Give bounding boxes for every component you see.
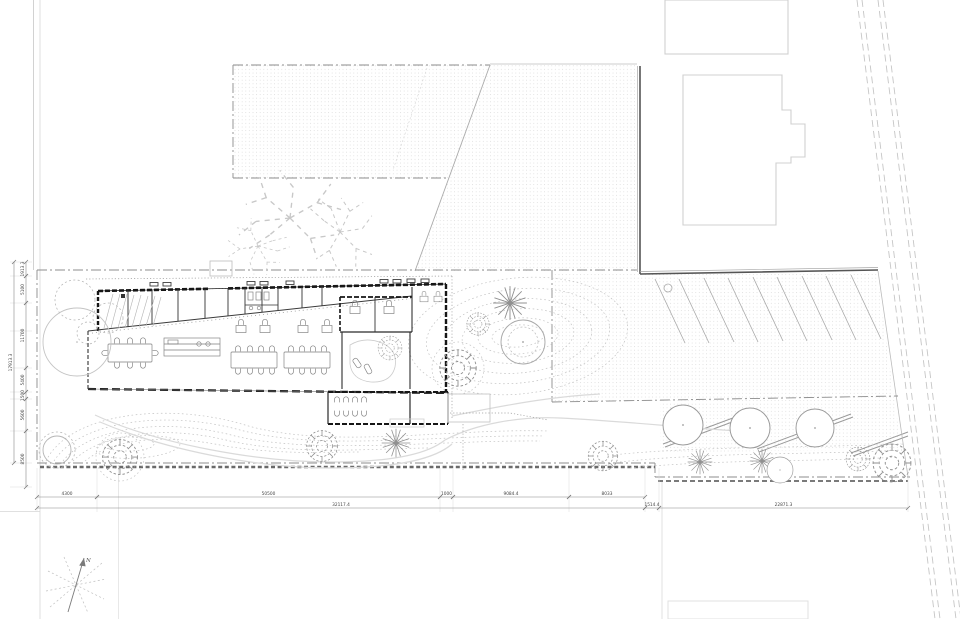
building (86, 276, 548, 470)
north-arrow: N (46, 557, 106, 613)
upper-field-hatched (233, 65, 490, 178)
entry-gate (210, 261, 232, 276)
site-plan-drawing: 43005050010009084.4803332117.41514.42287… (0, 0, 960, 619)
dimension-label: 9084.4 (503, 491, 518, 497)
dimension-label: 32117.4 (332, 502, 350, 508)
dimension-label: 4300 (62, 491, 73, 497)
interior-partitions (128, 286, 322, 327)
east-wing-rooms (340, 287, 412, 332)
south-annex (328, 392, 490, 427)
dimension-label: 1514.4 (644, 502, 659, 508)
left-road (0, 0, 119, 619)
long-table (108, 344, 152, 362)
long-table (284, 352, 330, 368)
dimension-label: 5600 (20, 409, 26, 420)
fixture-mark (121, 294, 125, 298)
courtyard (342, 332, 410, 389)
parking-row-trees (663, 405, 834, 483)
annex-chairs (335, 397, 367, 416)
dimension-label: 22871.3 (775, 502, 793, 508)
toilet-fixtures (248, 292, 269, 310)
kitchen-counter (164, 338, 220, 356)
lounger (363, 363, 372, 374)
dimension-label: 17913.3 (8, 353, 14, 371)
tree-center-dot (76, 341, 78, 343)
neighbor-buildings (665, 0, 805, 225)
branch-tree-cluster (220, 170, 383, 282)
dimension-label: 5400 (20, 374, 26, 385)
north-label: N (85, 558, 91, 564)
parking-area (553, 271, 908, 477)
boundary-dark-edge (638, 66, 879, 274)
dimension-label: 11700 (20, 328, 26, 342)
dimension-label: 5100 (20, 284, 26, 295)
north-needle (68, 558, 84, 612)
dimension-label: 50500 (262, 491, 276, 497)
site-plan-sheet: 43005050010009084.4803332117.41514.42287… (0, 0, 960, 619)
dimension-label: 1000 (441, 491, 452, 497)
neighbor-building-outline (665, 0, 788, 54)
neighbor-house-outline (683, 75, 805, 225)
dimension-label: 8033 (602, 491, 613, 497)
glass-facade-diagonal (88, 296, 412, 334)
long-table (231, 352, 277, 368)
bottom-right-parcel (662, 480, 808, 619)
dimension-label: 8500 (20, 453, 26, 464)
exterior-walls (88, 284, 448, 393)
circle-tree (43, 436, 71, 464)
north-needle-tip (79, 558, 85, 566)
lounger (352, 357, 362, 368)
dimension-label: 1913.3 (20, 261, 26, 276)
